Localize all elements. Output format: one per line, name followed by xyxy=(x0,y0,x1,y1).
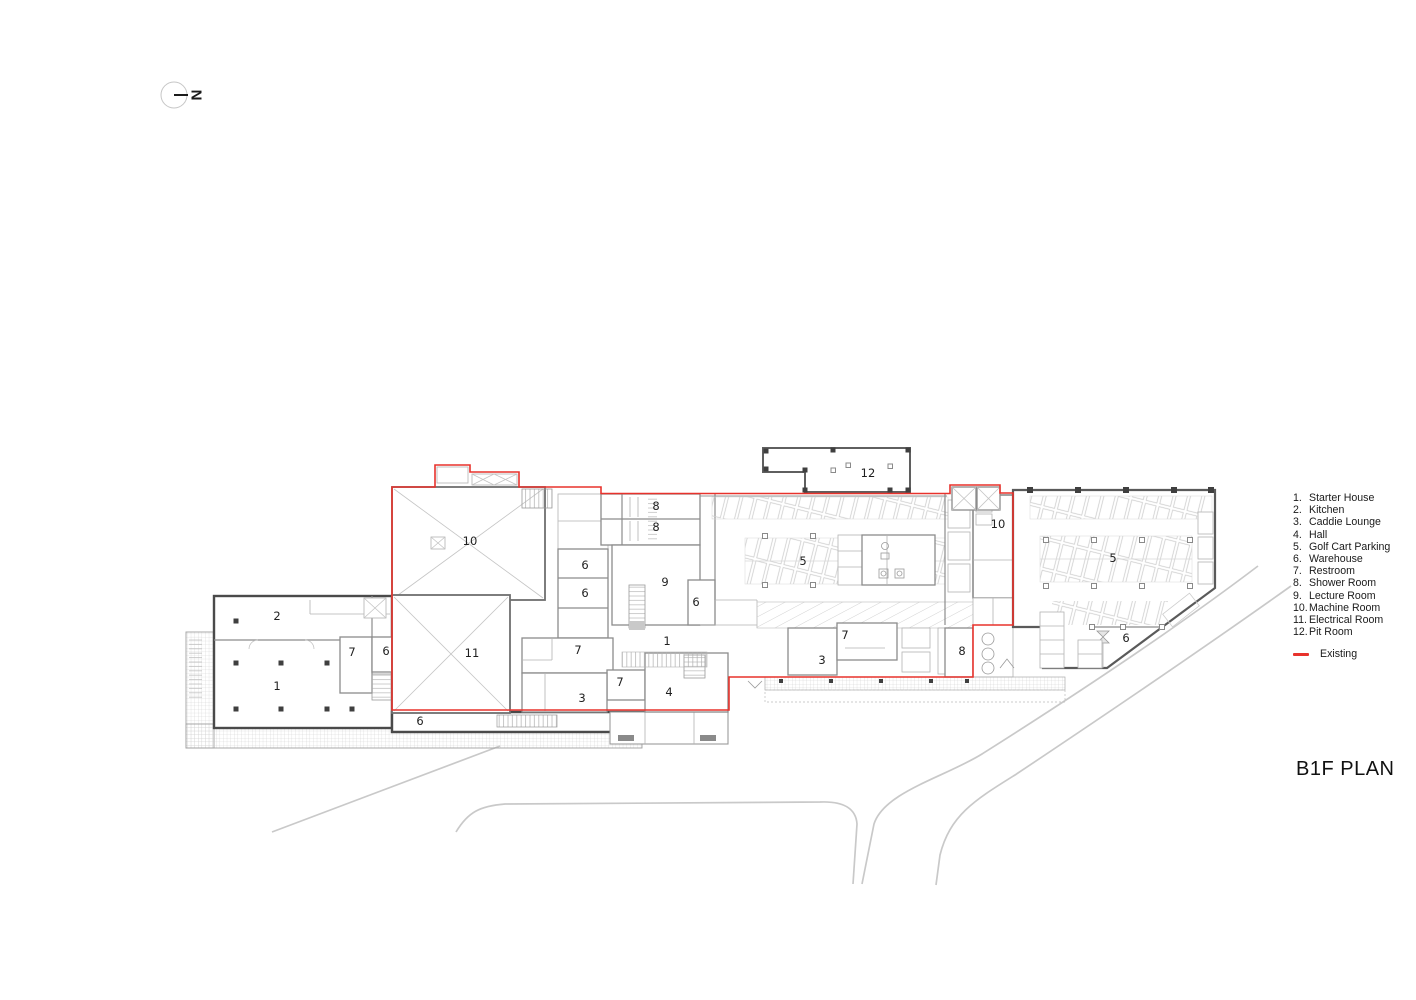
legend-item: 2. Kitchen xyxy=(1293,504,1390,516)
legend-item-number: 2. xyxy=(1293,504,1309,516)
legend-item-label: Caddie Lounge xyxy=(1309,516,1381,528)
legend-item-number: 9. xyxy=(1293,590,1309,602)
north-arrow-icon: N xyxy=(161,82,205,108)
legend-item-label: Golf Cart Parking xyxy=(1309,541,1390,553)
restroom-center-outline xyxy=(522,638,613,673)
legend-item: 1. Starter House xyxy=(1293,492,1390,504)
legend-item-label: Warehouse xyxy=(1309,553,1363,565)
south-walkway xyxy=(765,677,1065,702)
legend-item-number: 3. xyxy=(1293,516,1309,528)
existing-line-swatch xyxy=(1293,653,1309,656)
legend-item-label: Shower Room xyxy=(1309,577,1376,589)
legend-item-label: Pit Room xyxy=(1309,626,1353,638)
stair xyxy=(522,489,552,508)
cart-parking-east-block xyxy=(1013,487,1215,668)
legend-item-number: 4. xyxy=(1293,529,1309,541)
legend-item-number: 5. xyxy=(1293,541,1309,553)
existing-wing xyxy=(214,596,392,728)
legend-item-label: Electrical Room xyxy=(1309,614,1383,626)
legend-item: 9. Lecture Room xyxy=(1293,590,1390,602)
pit-room xyxy=(763,448,911,493)
legend-item-number: 7. xyxy=(1293,565,1309,577)
legend-item-number: 6. xyxy=(1293,553,1309,565)
drawing-sheet: N 2 1 7 6 10 11 6 6 6 8 8 9 6 1 7 7 3 4 … xyxy=(0,0,1416,1000)
floor-plan-svg: N xyxy=(0,0,1416,1000)
lecture-room-outline xyxy=(612,545,700,625)
caddie-lounge-west-outline xyxy=(522,673,607,712)
north-label: N xyxy=(188,90,205,101)
legend-item: 5. Golf Cart Parking xyxy=(1293,541,1390,553)
legend-item-number: 8. xyxy=(1293,577,1309,589)
legend-item: 3. Caddie Lounge xyxy=(1293,516,1390,528)
legend-item-label: Lecture Room xyxy=(1309,590,1376,602)
legend-item-number: 10. xyxy=(1293,602,1309,614)
legend: 1. Starter House 2. Kitchen 3. Caddie Lo… xyxy=(1293,492,1390,661)
legend-item-label: Starter House xyxy=(1309,492,1374,504)
pit-room-outline xyxy=(763,448,910,492)
legend-item-number: 1. xyxy=(1293,492,1309,504)
page-title: B1F PLAN xyxy=(1296,758,1394,781)
caddie-lounge-east-outline xyxy=(788,628,837,675)
warehouse-6-6-outline xyxy=(558,549,608,638)
legend-item: 4. Hall xyxy=(1293,529,1390,541)
restroom-east-outline xyxy=(837,623,897,660)
restroom-island-outline xyxy=(862,535,935,585)
shower-room-east-outline xyxy=(945,628,973,677)
restroom-west-outline xyxy=(340,637,372,693)
legend-item-label: Hall xyxy=(1309,529,1327,541)
legend-existing: Existing xyxy=(1293,648,1390,660)
legend-item: 6. Warehouse xyxy=(1293,553,1390,565)
legend-item: 8. Shower Room xyxy=(1293,577,1390,589)
legend-item-number: 11. xyxy=(1293,614,1309,626)
legend-item: 11. Electrical Room xyxy=(1293,614,1390,626)
legend-item-label: Kitchen xyxy=(1309,504,1344,516)
legend-item-label: Restroom xyxy=(1309,565,1355,577)
legend-item: 10. Machine Room xyxy=(1293,602,1390,614)
legend-item: 7. Restroom xyxy=(1293,565,1390,577)
legend-item: 12. Pit Room xyxy=(1293,626,1390,638)
chevron-down-icon xyxy=(748,681,762,688)
legend-item-number: 12. xyxy=(1293,626,1309,638)
legend-existing-label: Existing xyxy=(1320,648,1357,660)
legend-item-label: Machine Room xyxy=(1309,602,1380,614)
